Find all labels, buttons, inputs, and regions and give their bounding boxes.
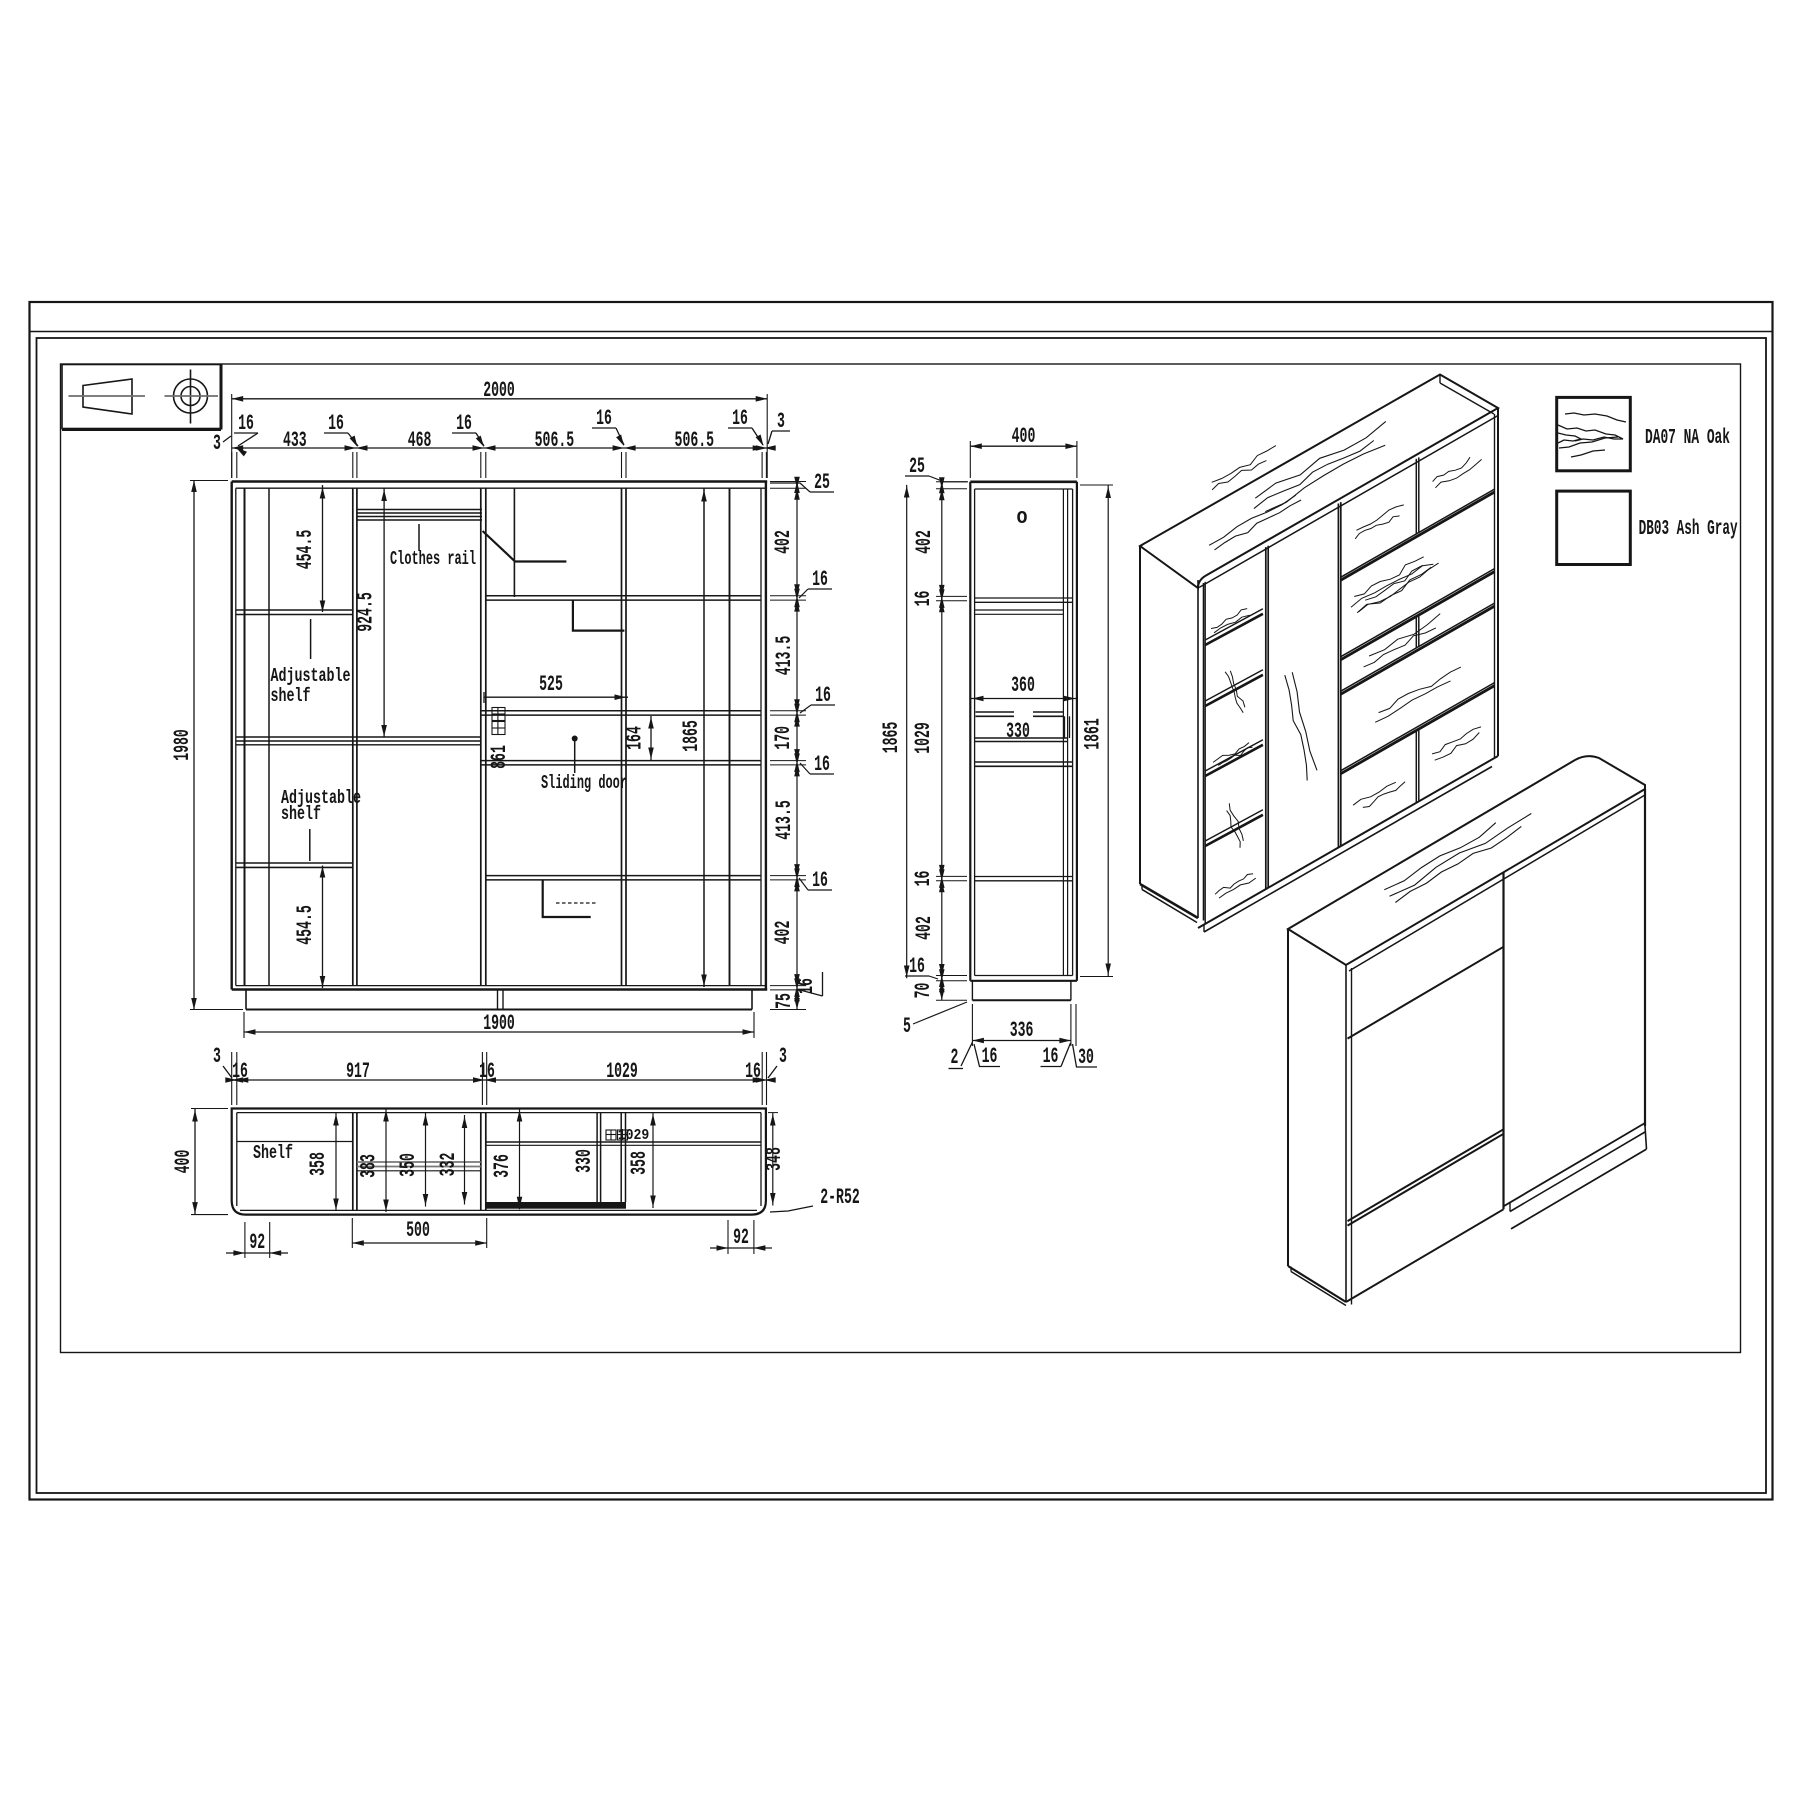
svg-text:16: 16 (745, 1059, 761, 1084)
svg-text:402: 402 (912, 916, 937, 940)
svg-text:1900: 1900 (483, 1011, 515, 1036)
svg-text:402: 402 (771, 530, 796, 554)
svg-text:383: 383 (357, 1154, 382, 1178)
svg-text:16: 16 (596, 406, 612, 431)
svg-text:16: 16 (982, 1044, 998, 1069)
svg-text:917: 917 (346, 1059, 370, 1084)
svg-text:DB03 Ash Gray: DB03 Ash Gray (1639, 518, 1738, 541)
svg-text:16: 16 (479, 1059, 495, 1084)
svg-text:3: 3 (777, 409, 785, 434)
svg-text:376: 376 (490, 1154, 515, 1178)
svg-text:348: 348 (762, 1147, 787, 1171)
svg-text:1980: 1980 (170, 729, 195, 761)
svg-text:336: 336 (1010, 1018, 1034, 1043)
svg-text:O: O (1017, 509, 1028, 529)
svg-text:16: 16 (328, 411, 344, 436)
svg-text:DA07 NA Oak: DA07 NA Oak (1645, 427, 1730, 450)
svg-text:506.5: 506.5 (535, 428, 575, 453)
svg-text:413.5: 413.5 (772, 800, 797, 840)
svg-text:1029: 1029 (606, 1059, 638, 1084)
svg-text:332: 332 (436, 1153, 461, 1177)
svg-text:16: 16 (911, 591, 936, 607)
svg-text:Shelf: Shelf (253, 1142, 293, 1164)
svg-text:16: 16 (812, 868, 828, 893)
svg-text:16: 16 (815, 683, 831, 708)
svg-text:2: 2 (951, 1045, 959, 1070)
svg-text:Sliding door: Sliding door (541, 772, 627, 794)
svg-text:shelf: shelf (271, 685, 311, 707)
svg-text:350: 350 (396, 1153, 421, 1177)
svg-text:1865: 1865 (679, 720, 704, 752)
svg-text:70: 70 (911, 983, 936, 999)
svg-text:402: 402 (912, 530, 937, 554)
svg-text:92: 92 (249, 1230, 265, 1255)
svg-text:924.5: 924.5 (354, 592, 379, 632)
svg-text:164: 164 (623, 726, 648, 750)
svg-text:16: 16 (911, 871, 936, 887)
svg-text:400: 400 (171, 1150, 196, 1174)
svg-text:402: 402 (771, 921, 796, 945)
svg-text:16: 16 (732, 406, 748, 431)
svg-text:Clothes rail: Clothes rail (390, 548, 476, 570)
svg-text:16: 16 (1043, 1044, 1059, 1069)
svg-text:3: 3 (213, 1044, 221, 1069)
svg-text:454.5: 454.5 (293, 530, 318, 570)
svg-text:shelf: shelf (281, 803, 321, 825)
svg-text:16: 16 (909, 954, 925, 979)
svg-text:1029: 1029 (911, 722, 936, 754)
svg-text:400: 400 (1012, 424, 1036, 449)
svg-text:16: 16 (814, 752, 830, 777)
svg-text:360: 360 (1011, 673, 1035, 698)
svg-text:25: 25 (909, 454, 925, 479)
svg-text:1861: 1861 (1081, 718, 1106, 750)
svg-text:30: 30 (1078, 1045, 1094, 1070)
svg-text:2000: 2000 (483, 378, 515, 403)
svg-text:3: 3 (779, 1044, 787, 1069)
svg-text:5: 5 (903, 1014, 911, 1039)
svg-text:16: 16 (812, 567, 828, 592)
svg-text:2-R52: 2-R52 (820, 1185, 860, 1210)
svg-text:330: 330 (572, 1149, 597, 1173)
svg-text:16: 16 (238, 411, 254, 436)
svg-text:16: 16 (232, 1059, 248, 1084)
svg-text:3: 3 (213, 431, 221, 456)
svg-text:358: 358 (306, 1152, 331, 1176)
svg-text:16: 16 (456, 411, 472, 436)
svg-text:358: 358 (627, 1151, 652, 1175)
svg-text:170: 170 (771, 726, 796, 750)
svg-text:500: 500 (406, 1218, 430, 1243)
svg-text:454.5: 454.5 (293, 905, 318, 945)
svg-text:92: 92 (733, 1225, 749, 1250)
svg-text:1029: 1029 (618, 1127, 650, 1144)
svg-text:506.5: 506.5 (675, 428, 715, 453)
svg-text:75: 75 (772, 993, 797, 1009)
svg-text:Adjustable: Adjustable (271, 665, 351, 687)
svg-text:525: 525 (539, 672, 563, 697)
svg-text:1865: 1865 (879, 722, 904, 754)
svg-text:861: 861 (487, 745, 512, 769)
svg-text:330: 330 (1006, 719, 1030, 744)
svg-text:468: 468 (408, 428, 432, 453)
svg-text:413.5: 413.5 (772, 636, 797, 676)
svg-text:25: 25 (814, 470, 830, 495)
svg-text:433: 433 (283, 428, 307, 453)
